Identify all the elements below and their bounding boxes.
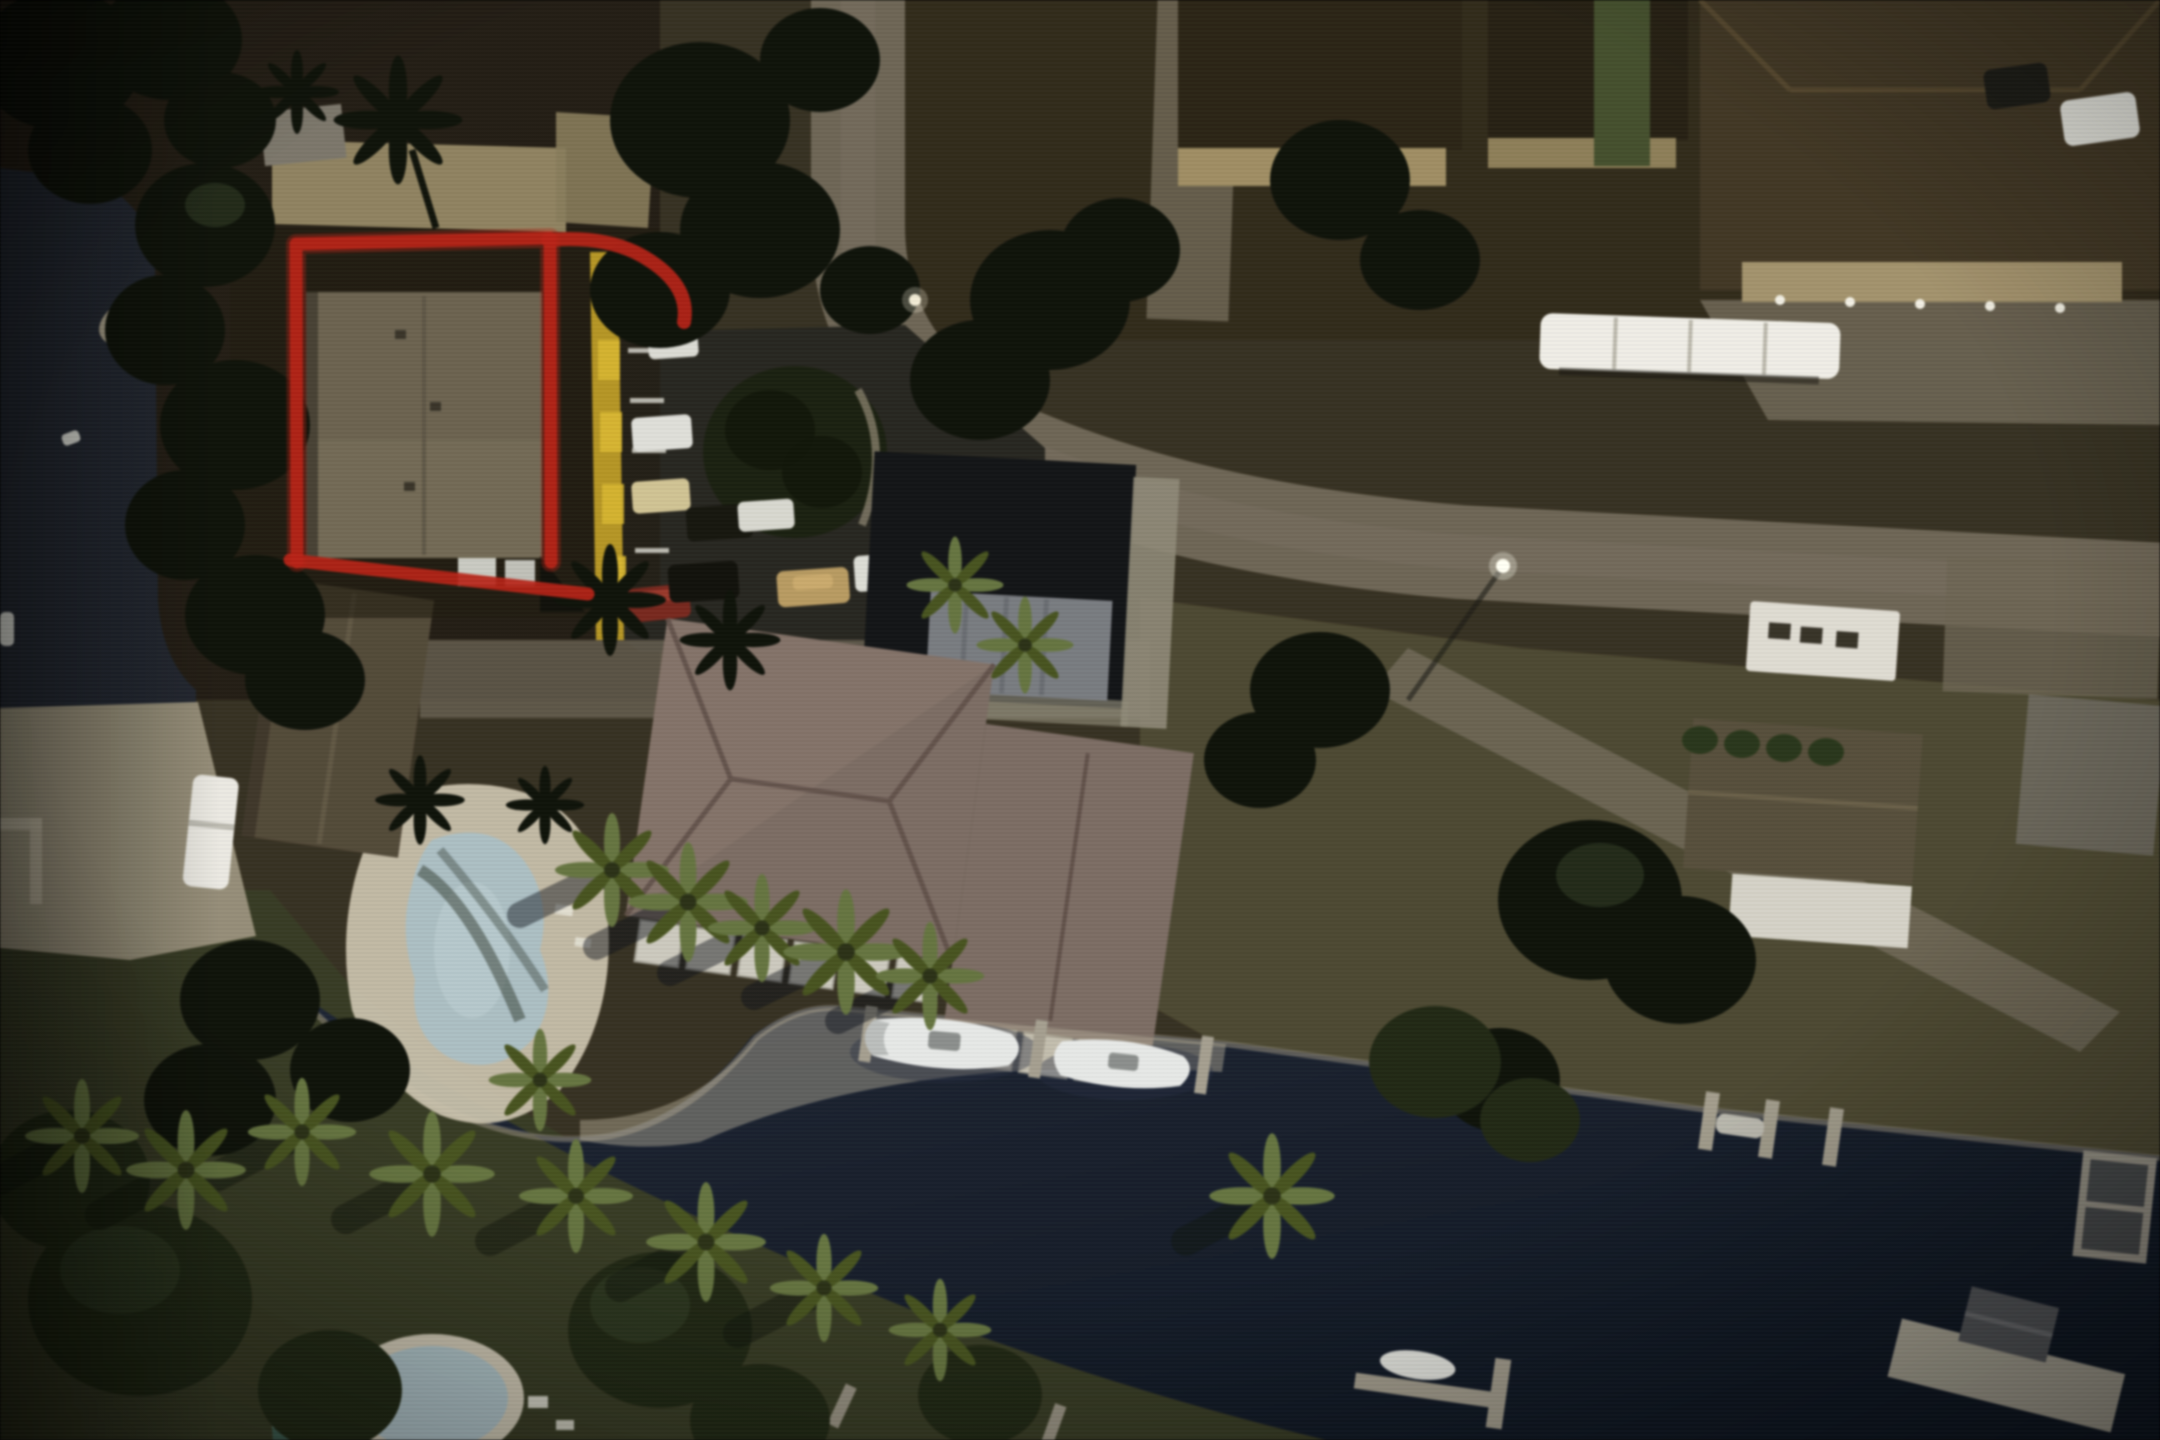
vignette (0, 0, 2160, 1440)
aerial-photo-frame (0, 0, 2160, 1440)
aerial-photo-canvas (0, 0, 2160, 1440)
